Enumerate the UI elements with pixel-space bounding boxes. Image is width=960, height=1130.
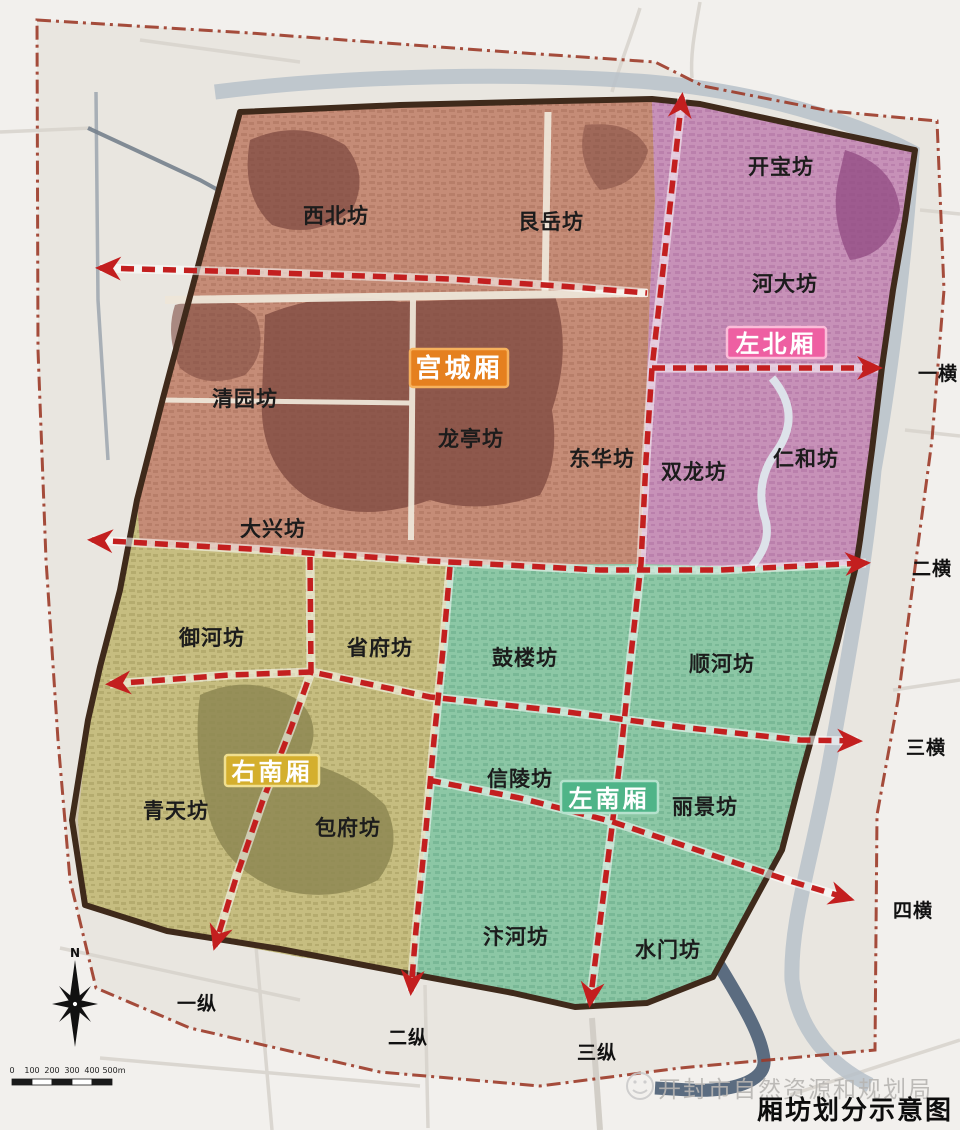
zone-plate-zuonanxiang: 左南厢 [561,781,658,813]
ward-label: 大兴坊 [240,517,306,541]
ward-label: 信陵坊 [487,767,553,791]
scale-tick-label: 500m [102,1066,125,1075]
planning-map: 西北坊 艮岳坊 开宝坊 河大坊 清园坊 龙亭坊 东华坊 双龙坊 仁和坊 大兴坊 … [0,0,960,1130]
scale-bar-segments [12,1079,112,1085]
ward-label: 西北坊 [303,204,369,228]
ward-label: 水门坊 [635,938,701,962]
compass-hub [72,1001,77,1006]
road-label-yiheng: 一横 [918,362,958,385]
ward-label: 鼓楼坊 [492,646,558,670]
scale-tick-label: 300 [64,1066,79,1075]
road-label-sanheng: 三横 [906,736,946,759]
ward-label: 丽景坊 [672,795,738,819]
road-label-sanzong: 三纵 [577,1042,617,1064]
ward-label: 包府坊 [315,816,381,840]
zone-plate-label: 左南厢 [569,785,650,813]
scale-tick-label: 200 [44,1066,59,1075]
map-canvas: 西北坊 艮岳坊 开宝坊 河大坊 清园坊 龙亭坊 东华坊 双龙坊 仁和坊 大兴坊 … [0,0,960,1130]
scale-tick-label: 0 [9,1066,14,1075]
map-title: 厢坊划分示意图 [757,1095,953,1126]
ward-label: 仁和坊 [773,447,839,471]
zone-plate-zuobeixiang: 左北厢 [727,327,826,358]
zone-plate-gongchengxiang: 宫城厢 [410,349,508,387]
ward-label: 汴河坊 [483,925,549,949]
zone-plate-label: 右南厢 [232,758,313,786]
ward-label: 艮岳坊 [518,210,584,234]
road-label-yizong: 一纵 [177,993,217,1015]
road-label-siheng: 四横 [893,899,933,922]
zone-plate-label: 宫城厢 [415,353,502,384]
ward-label: 龙亭坊 [438,427,504,451]
compass-north-label: N [70,946,80,960]
ward-label: 清园坊 [212,387,278,411]
zone-plate-younanxiang: 右南厢 [225,755,319,786]
scale-tick-label: 400 [84,1066,99,1075]
ward-label: 双龙坊 [661,460,727,484]
road-label-erzong: 二纵 [388,1027,428,1049]
ward-label: 顺河坊 [689,652,755,676]
ward-label: 省府坊 [346,636,413,660]
ward-label: 河大坊 [752,272,818,296]
ward-label: 东华坊 [569,447,635,471]
ward-label: 御河坊 [178,626,245,650]
ward-label: 开宝坊 [748,155,814,179]
zone-plate-label: 左北厢 [736,330,817,358]
scale-tick-label: 100 [24,1066,39,1075]
road-label-erheng: 二横 [912,557,952,580]
ward-label: 青天坊 [143,799,209,823]
